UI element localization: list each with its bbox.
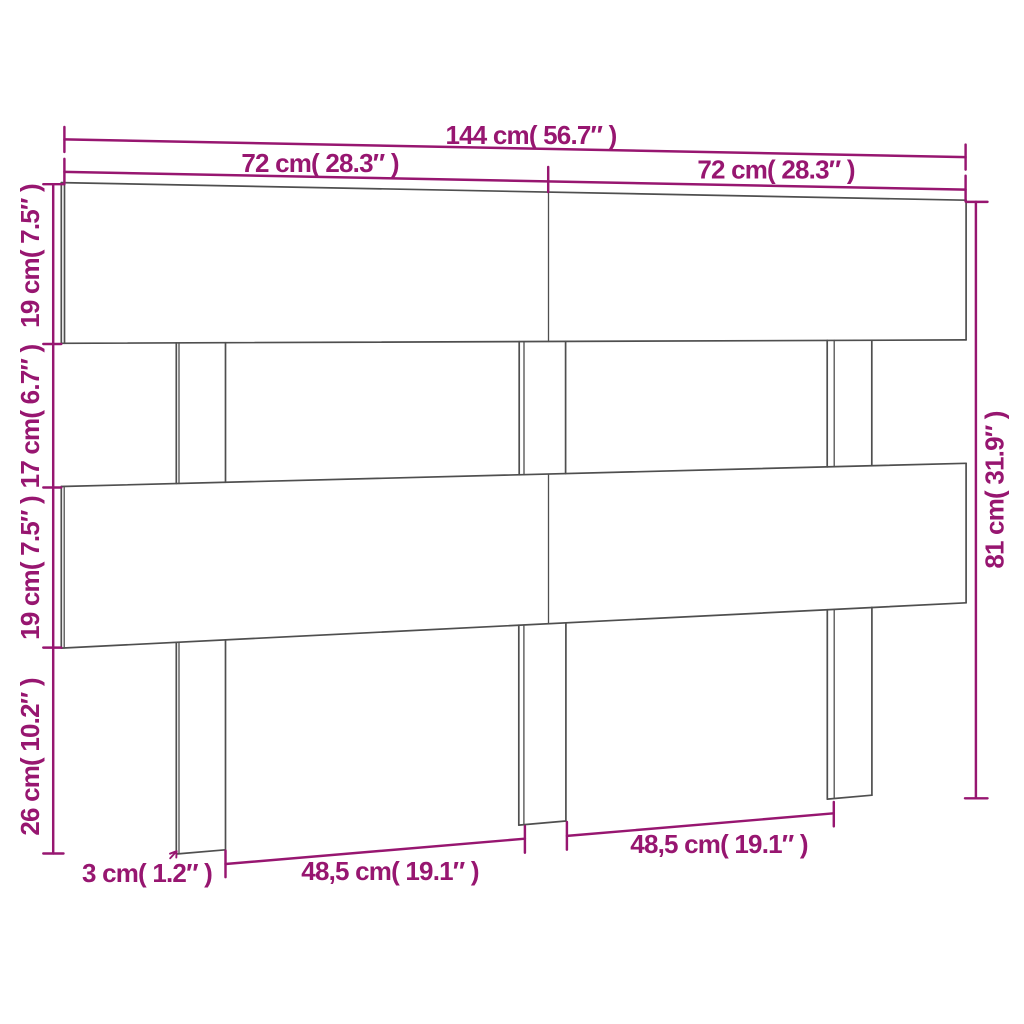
- svg-text:19 cm( 7.5″ ): 19 cm( 7.5″ ): [15, 184, 45, 328]
- svg-text:72 cm( 28.3″ ): 72 cm( 28.3″ ): [241, 148, 398, 178]
- svg-text:3 cm( 1.2″ ): 3 cm( 1.2″ ): [82, 858, 212, 888]
- svg-text:144 cm( 56.7″ ): 144 cm( 56.7″ ): [445, 120, 616, 150]
- svg-text:81 cm( 31.9″ ): 81 cm( 31.9″ ): [979, 411, 1009, 568]
- svg-text:19 cm( 7.5″ ): 19 cm( 7.5″ ): [15, 496, 45, 640]
- svg-text:48,5 cm( 19.1″ ): 48,5 cm( 19.1″ ): [301, 856, 479, 886]
- svg-text:26 cm( 10.2″ ): 26 cm( 10.2″ ): [15, 678, 45, 835]
- svg-text:48,5 cm( 19.1″ ): 48,5 cm( 19.1″ ): [630, 829, 808, 859]
- svg-text:72 cm( 28.3″ ): 72 cm( 28.3″ ): [697, 155, 854, 185]
- svg-text:17 cm( 6.7″ ): 17 cm( 6.7″ ): [15, 345, 45, 489]
